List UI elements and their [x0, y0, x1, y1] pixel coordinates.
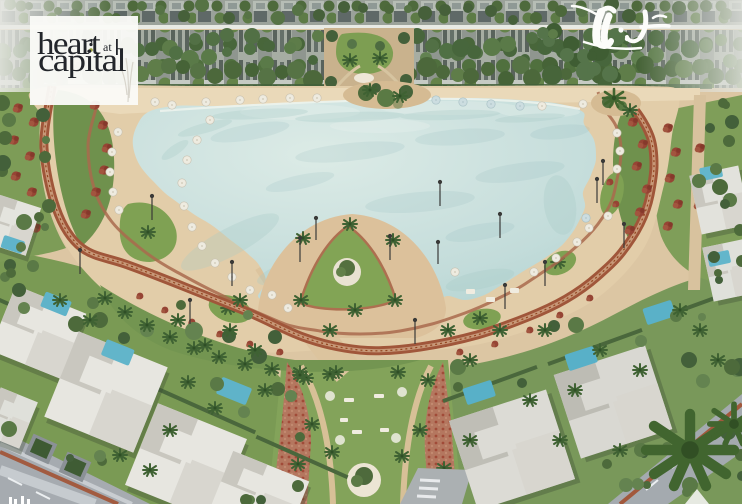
svg-text:capital: capital — [38, 43, 126, 79]
